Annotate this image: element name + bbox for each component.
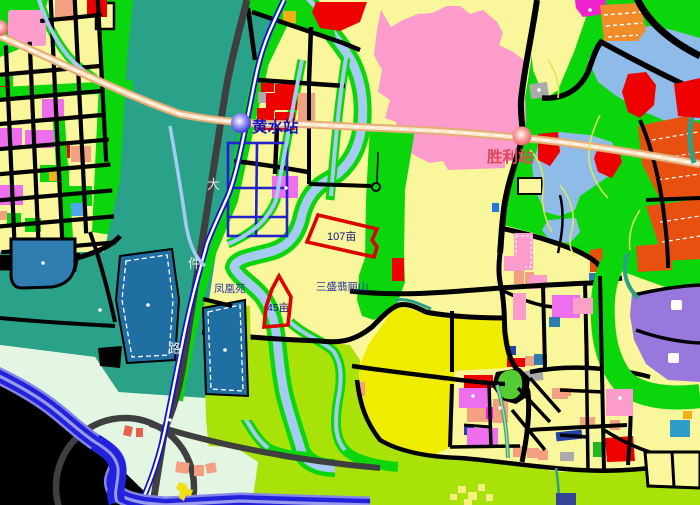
- svg-text:107亩: 107亩: [327, 229, 356, 243]
- svg-text:件: 件: [188, 256, 201, 271]
- svg-text:路: 路: [168, 341, 181, 356]
- svg-text:大: 大: [207, 177, 220, 192]
- svg-text:三盛翡丽山: 三盛翡丽山: [316, 280, 369, 293]
- svg-text:45亩: 45亩: [267, 301, 289, 314]
- svg-text:胜利站: 胜利站: [487, 147, 534, 166]
- svg-text:凤凰苑: 凤凰苑: [214, 282, 246, 295]
- svg-text:黄水站: 黄水站: [252, 117, 299, 136]
